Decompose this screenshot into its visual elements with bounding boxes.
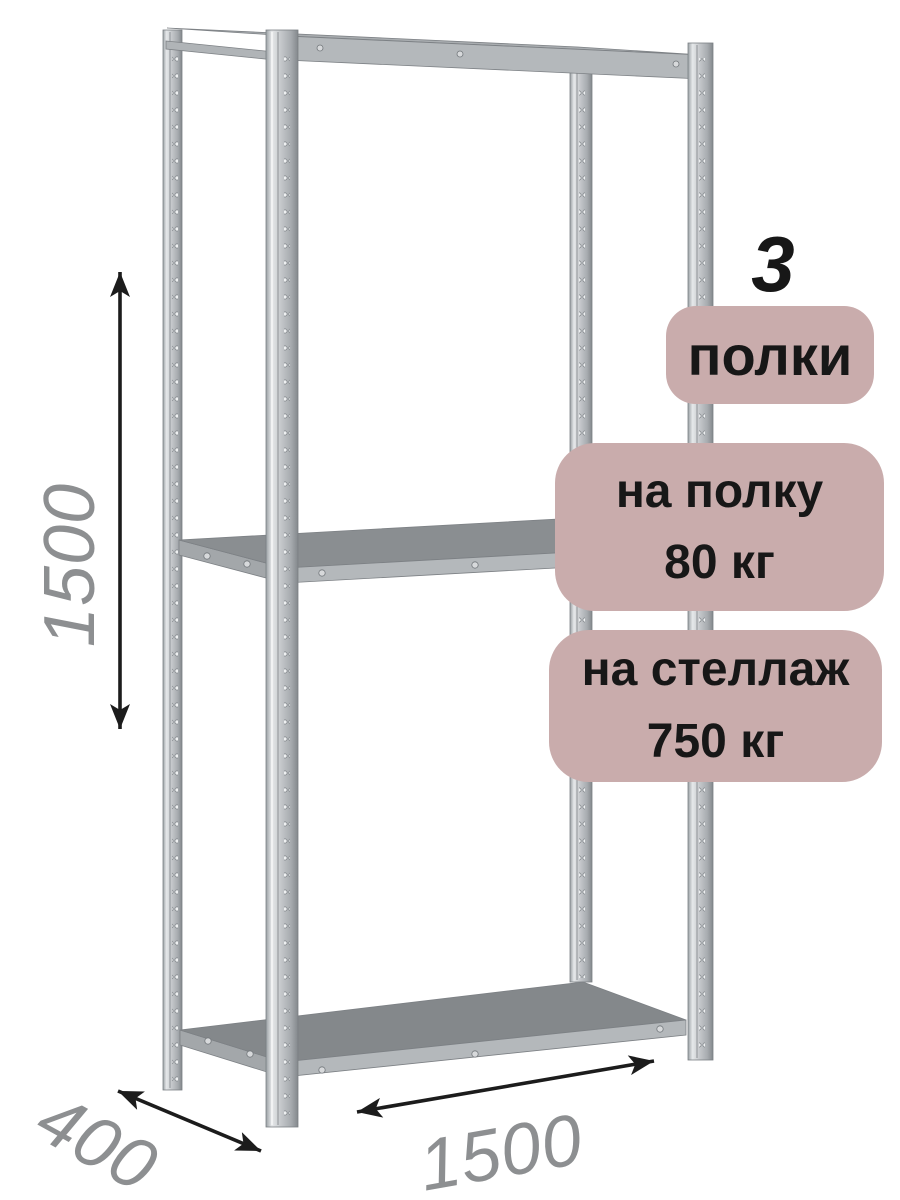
rivet	[204, 553, 210, 559]
post-front-left	[266, 30, 298, 1127]
rivet	[657, 1026, 663, 1032]
height-dimension-label: 1500	[30, 455, 110, 675]
shelf-top	[166, 28, 702, 79]
shelf-count-number: 3	[733, 224, 813, 304]
shelf-top-front-beam	[285, 36, 702, 79]
rivet	[457, 51, 463, 57]
per-shelf-load-line1: на полку	[616, 456, 823, 527]
per-rack-load-line2: 750 кг	[647, 706, 784, 778]
post-back-left	[163, 30, 182, 1090]
per-rack-load-badge: на стеллаж 750 кг	[549, 630, 882, 782]
rivet	[319, 1067, 325, 1073]
per-rack-load-line1: на стеллаж	[582, 634, 850, 706]
product-image: 1500 400 1500 3 полки на полку 80 кг на …	[0, 0, 900, 1200]
shelf-bottom	[180, 982, 686, 1077]
rivet	[317, 45, 323, 51]
rivet	[673, 61, 679, 67]
per-shelf-load-badge: на полку 80 кг	[555, 443, 884, 611]
rivet	[319, 570, 325, 576]
rivet	[205, 1038, 211, 1044]
shelf-count-badge-label: полки	[688, 323, 853, 388]
rivet	[472, 562, 478, 568]
rivet	[247, 1051, 253, 1057]
per-shelf-load-line2: 80 кг	[664, 527, 775, 598]
rivet	[244, 561, 250, 567]
shelf-count-badge: полки	[666, 306, 874, 404]
rivet	[472, 1051, 478, 1057]
